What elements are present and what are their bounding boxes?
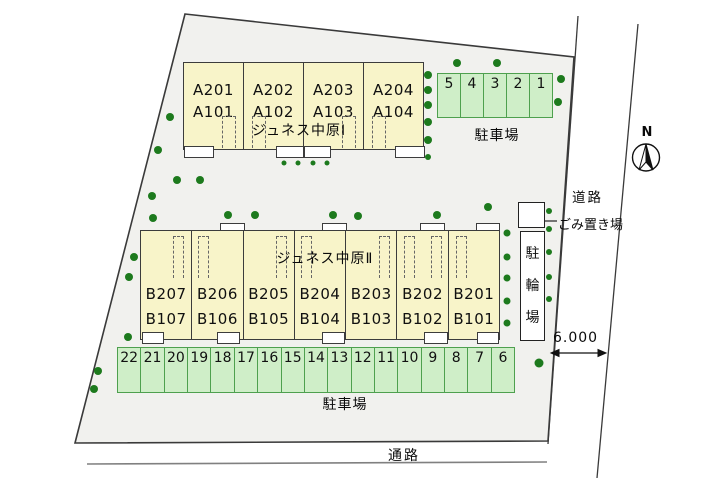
entrance-porch: [220, 223, 245, 231]
building-a-name: ジュネス中原Ⅰ: [252, 120, 346, 140]
passage-label: 通路: [388, 445, 420, 465]
room-number: B202: [397, 282, 447, 307]
parking-bottom: 222120191817161514131211109876: [117, 347, 515, 393]
bicycle-label-char: 駐: [526, 247, 540, 261]
bicycle-label-char: 場: [526, 311, 540, 325]
entrance-porch: [322, 223, 347, 231]
tree-icon: [504, 230, 511, 237]
tree-icon: [124, 333, 132, 341]
parking-stall-2: 2: [506, 74, 529, 117]
bicycle-parking-box: 駐輪場: [520, 231, 545, 341]
tree-icon: [325, 161, 330, 166]
tree-icon: [453, 59, 461, 67]
tree-icon: [424, 136, 432, 144]
road-outer-line: [597, 24, 638, 478]
parking-stall-6: 6: [491, 348, 514, 392]
stair-outline: [431, 236, 442, 278]
parking-bottom-label: 駐車場: [323, 394, 368, 414]
parking-stall-22: 22: [118, 348, 140, 392]
entrance-porch: [217, 332, 240, 344]
parking-stall-20: 20: [164, 348, 187, 392]
tree-icon: [546, 296, 552, 302]
parking-stall-14: 14: [304, 348, 327, 392]
room-number: B201: [449, 282, 499, 307]
tree-icon: [251, 211, 259, 219]
room-number: B205: [244, 282, 294, 307]
parking-stall-11: 11: [374, 348, 397, 392]
room-number: B207: [141, 282, 191, 307]
tree-icon: [282, 161, 287, 166]
entrance-porch: [424, 332, 448, 344]
tree-icon: [504, 275, 511, 282]
room-number: B103: [346, 307, 396, 332]
room-number: B203: [346, 282, 396, 307]
room-number: B106: [192, 307, 242, 332]
tree-icon: [425, 154, 431, 160]
tree-icon: [546, 208, 552, 214]
tree-icon: [433, 211, 441, 219]
parking-stall-15: 15: [281, 348, 304, 392]
entrance-porch: [322, 332, 345, 344]
north-label: N: [642, 125, 653, 140]
parking-stall-3: 3: [483, 74, 506, 117]
room-number: B107: [141, 307, 191, 332]
dimension-arrow: [551, 350, 606, 357]
tree-icon: [424, 86, 432, 94]
tree-icon: [125, 273, 133, 281]
parking-stall-13: 13: [327, 348, 350, 392]
parking-stall-21: 21: [140, 348, 163, 392]
tree-icon: [424, 118, 432, 126]
north-arrow-icon: [633, 144, 660, 171]
tree-icon: [424, 71, 432, 79]
entrance-porch: [184, 146, 214, 158]
room-number: B206: [192, 282, 242, 307]
tree-icon: [90, 385, 98, 393]
dimension-label: 6.000: [553, 330, 598, 346]
parking-stall-4: 4: [460, 74, 483, 117]
building-b: B207B107B206B106B205B105B204B104B203B103…: [140, 230, 500, 340]
tree-icon: [354, 212, 362, 220]
room-number: A203: [304, 79, 363, 101]
entrance-porch: [276, 146, 304, 158]
parking-stall-17: 17: [234, 348, 257, 392]
tree-icon: [484, 203, 492, 211]
parking-stall-5: 5: [438, 74, 460, 117]
bicycle-label-char: 輪: [526, 279, 540, 293]
stair-outline: [372, 116, 386, 148]
entrance-porch: [142, 332, 164, 344]
parking-stall-1: 1: [529, 74, 552, 117]
tree-icon: [546, 274, 552, 280]
tree-icon: [166, 113, 174, 121]
stair-outline: [379, 236, 390, 278]
room-number: A201: [184, 79, 243, 101]
road-label: 道路: [572, 186, 603, 206]
room-number: A204: [364, 79, 423, 101]
tree-icon: [329, 211, 337, 219]
tree-icon: [424, 101, 432, 109]
parking-stall-7: 7: [467, 348, 490, 392]
tree-icon: [148, 192, 156, 200]
tree-icon: [535, 359, 544, 368]
parking-stall-12: 12: [351, 348, 374, 392]
parking-stall-16: 16: [257, 348, 280, 392]
parking-stall-9: 9: [421, 348, 444, 392]
tree-icon: [296, 161, 301, 166]
entrance-porch: [476, 223, 500, 231]
parking-stall-19: 19: [187, 348, 210, 392]
tree-icon: [557, 75, 565, 83]
stair-outline: [198, 236, 209, 278]
building-b-name: ジュネス中原Ⅱ: [277, 248, 374, 268]
passage-line: [87, 462, 547, 464]
parking-top-label: 駐車場: [475, 125, 520, 145]
stair-outline: [222, 116, 236, 148]
garbage-box: [518, 202, 545, 228]
entrance-porch: [395, 146, 425, 158]
tree-icon: [94, 367, 102, 375]
garbage-label: ごみ置き場: [558, 214, 623, 233]
tree-icon: [311, 161, 316, 166]
room-number: B104: [295, 307, 345, 332]
tree-icon: [504, 320, 511, 327]
tree-icon: [546, 226, 552, 232]
parking-stall-10: 10: [397, 348, 420, 392]
site-plan: A201A101A202A102A203A103A204A104 ジュネス中原Ⅰ…: [0, 0, 720, 480]
room-number: A202: [244, 79, 303, 101]
entrance-porch: [477, 332, 499, 344]
tree-icon: [154, 146, 162, 154]
tree-icon: [224, 211, 232, 219]
room-number: B102: [397, 307, 447, 332]
entrance-porch: [304, 146, 331, 158]
parking-top: 54321: [437, 73, 553, 118]
room-number: B105: [244, 307, 294, 332]
room-number: B101: [449, 307, 499, 332]
tree-icon: [554, 98, 562, 106]
tree-icon: [504, 298, 511, 305]
tree-icon: [196, 176, 204, 184]
stair-outline: [456, 236, 467, 278]
tree-icon: [504, 254, 511, 261]
stair-outline: [404, 236, 415, 278]
tree-icon: [493, 59, 501, 67]
parking-stall-18: 18: [210, 348, 233, 392]
tree-icon: [149, 214, 157, 222]
tree-icon: [546, 249, 552, 255]
entrance-porch: [420, 223, 445, 231]
tree-icon: [173, 176, 181, 184]
parking-stall-8: 8: [444, 348, 467, 392]
tree-icon: [130, 253, 138, 261]
room-number: B204: [295, 282, 345, 307]
stair-outline: [173, 236, 184, 278]
